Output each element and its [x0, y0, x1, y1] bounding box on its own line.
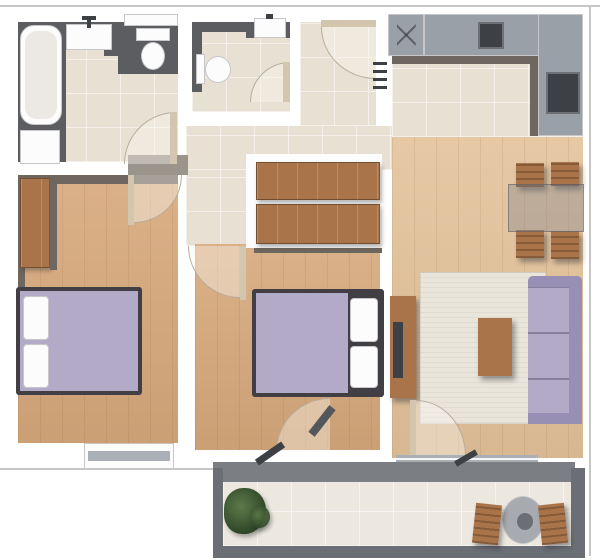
- wc-toilet-bowl: [205, 56, 231, 83]
- plot-line-right: [589, 5, 591, 556]
- oven: [478, 22, 504, 49]
- hall-south-floor: [186, 170, 246, 246]
- tv: [393, 322, 403, 378]
- coffee-table: [478, 318, 512, 376]
- dining-table: [508, 184, 584, 232]
- bed1-pillow-1: [23, 296, 49, 340]
- bed2-mattress: [256, 293, 348, 393]
- bed2-pillow-1: [350, 298, 378, 342]
- balcony-table-center: [517, 513, 533, 530]
- wc-toilet-tank: [196, 54, 205, 84]
- bedroom1-window-sash: [88, 451, 170, 461]
- bathroom-door-leaf: [170, 112, 177, 164]
- dining-chair-2: [551, 162, 579, 186]
- sofa-armrest-bottom: [528, 413, 582, 424]
- bedroom1-wardrobe: [20, 178, 50, 268]
- bed1-pillow-2: [23, 344, 49, 388]
- hall-wall-hook-4: [373, 86, 387, 89]
- balcony-railing-left: [213, 468, 223, 558]
- wc-sink: [254, 18, 286, 38]
- balcony-chair-2: [538, 503, 568, 545]
- bedroom2-door-leaf: [240, 246, 246, 300]
- sofa-armrest-top: [528, 276, 582, 287]
- balcony-railing-right: [571, 468, 585, 558]
- toilet-shelf: [124, 14, 178, 26]
- wc-faucet: [266, 14, 273, 19]
- hall-wall-hook-2: [373, 70, 387, 73]
- bathtub-inner: [25, 31, 57, 119]
- fridge-cabinet: [388, 14, 424, 56]
- balcony-chair-1: [472, 503, 502, 545]
- wc-door-leaf: [283, 62, 290, 102]
- balcony-top-shadow: [213, 462, 575, 484]
- hall-wall-hook-3: [373, 78, 387, 81]
- entry-door-leaf: [321, 20, 376, 27]
- floor-plan: [0, 0, 600, 560]
- bedroom2-wardrobe: [256, 204, 380, 244]
- dining-chair-3: [516, 230, 544, 258]
- hall-wall-hook-1: [373, 62, 387, 65]
- bedroom1-wardrobe-shadow: [50, 180, 57, 270]
- hall-wardrobe: [256, 162, 380, 200]
- dining-chair-4: [551, 231, 579, 259]
- bathroom-faucet-stem: [87, 20, 91, 28]
- sofa-backrest: [569, 276, 582, 424]
- cooktop: [546, 72, 580, 114]
- plot-line-top: [0, 5, 600, 7]
- balcony-railing-bottom: [213, 546, 585, 558]
- bed2-pillow-2: [350, 346, 378, 388]
- washing-machine: [20, 130, 60, 164]
- toilet-tank: [136, 28, 170, 41]
- toilet-bowl: [141, 42, 165, 70]
